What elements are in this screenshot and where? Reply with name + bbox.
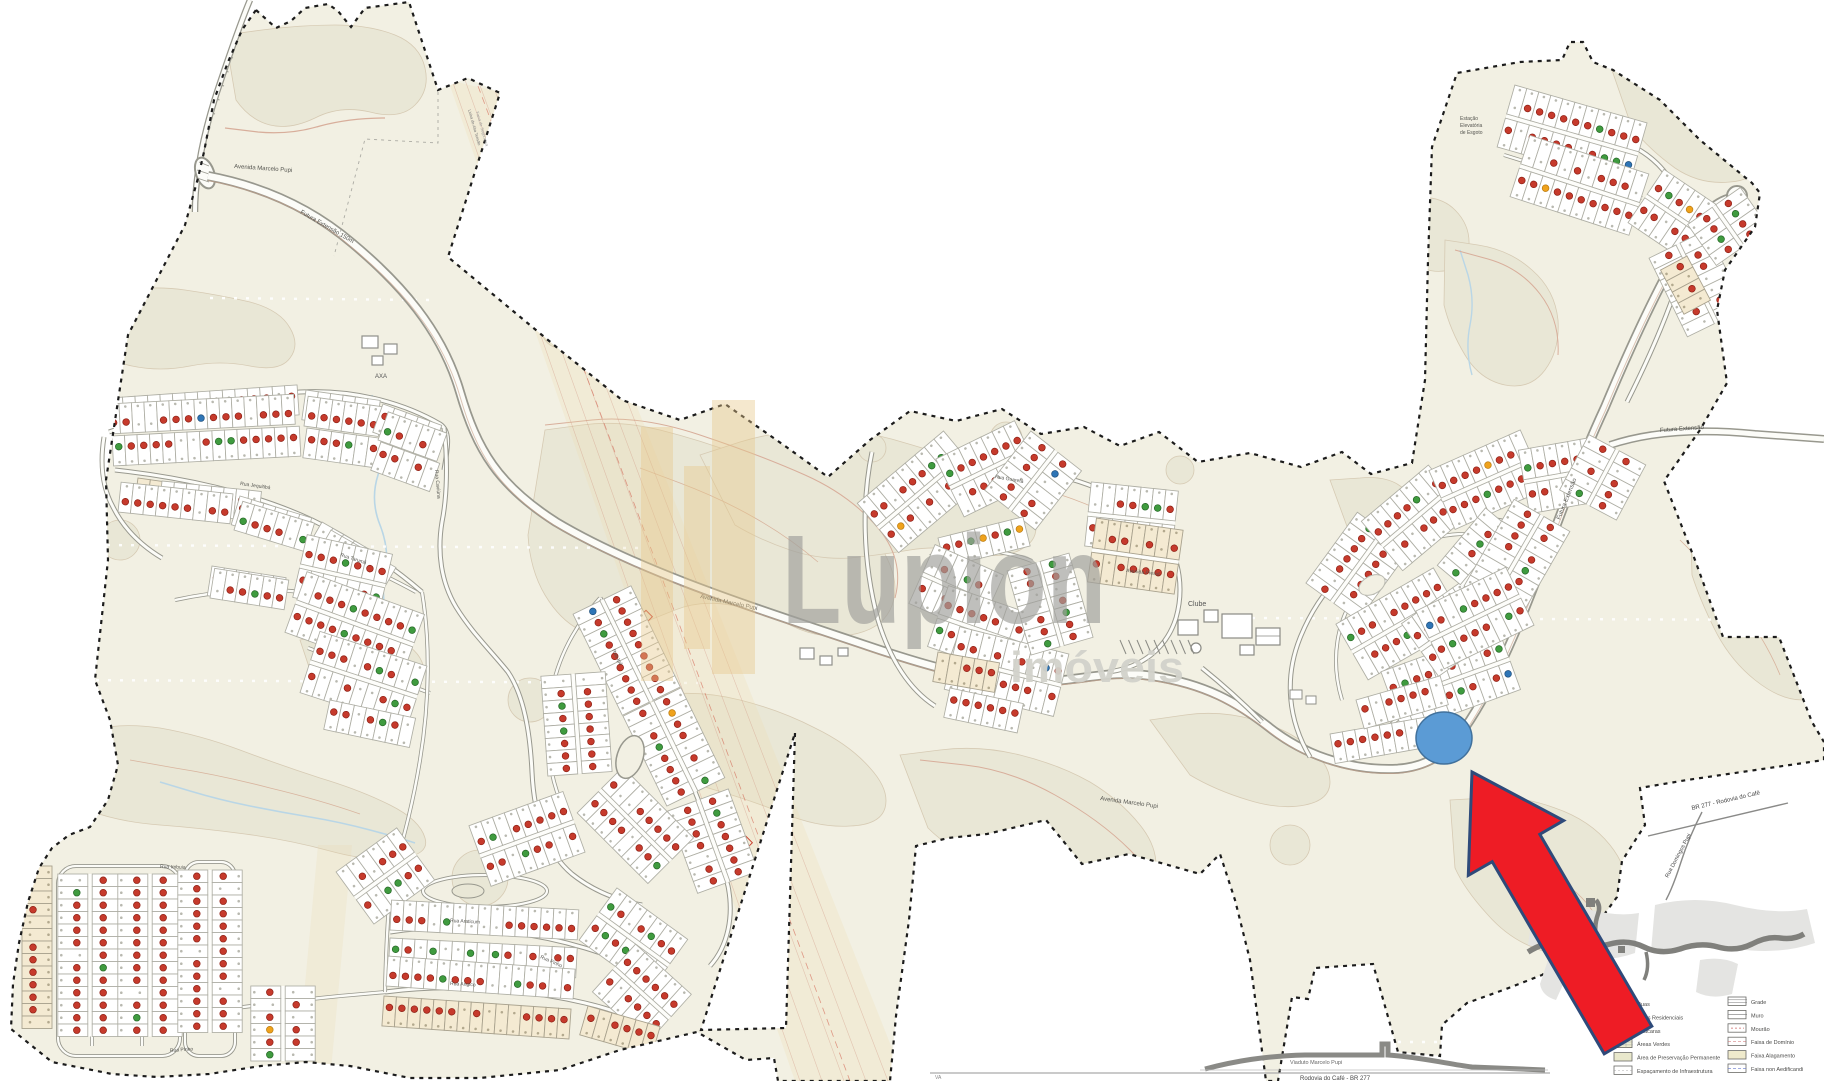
svg-text:imóveis: imóveis	[1010, 643, 1184, 692]
svg-text:Faixa de Domínio: Faixa de Domínio	[1751, 1040, 1794, 1046]
svg-text:Clube: Clube	[1188, 601, 1206, 608]
svg-text:Faixa Alagamento: Faixa Alagamento	[1751, 1054, 1795, 1060]
svg-text:Áreas Verdes: Áreas Verdes	[1637, 1041, 1670, 1048]
svg-text:AXA: AXA	[375, 374, 387, 380]
svg-text:Área de Preservação Permanente: Área de Preservação Permanente	[1637, 1055, 1720, 1062]
svg-text:Viaduto Marcelo Pupi: Viaduto Marcelo Pupi	[1290, 1060, 1342, 1066]
svg-text:Estação: Estação	[1460, 116, 1478, 122]
svg-text:Elevatória: Elevatória	[1460, 123, 1482, 129]
svg-text:Grade: Grade	[1751, 1000, 1766, 1006]
svg-text:Rua Imbuia: Rua Imbuia	[160, 864, 186, 871]
svg-text:Lupion: Lupion	[782, 509, 1106, 650]
svg-text:Muro: Muro	[1751, 1013, 1764, 1019]
svg-text:Rodovia do Café - BR 277: Rodovia do Café - BR 277	[1300, 1076, 1371, 1081]
svg-text:Espaçamento de Infraestrutura: Espaçamento de Infraestrutura	[1637, 1069, 1713, 1075]
svg-text:VA: VA	[935, 1075, 942, 1081]
svg-text:Faixa non Aedificandi: Faixa non Aedificandi	[1751, 1067, 1803, 1073]
svg-text:de Esgoto: de Esgoto	[1460, 130, 1483, 136]
svg-text:Mourão: Mourão	[1751, 1027, 1770, 1033]
